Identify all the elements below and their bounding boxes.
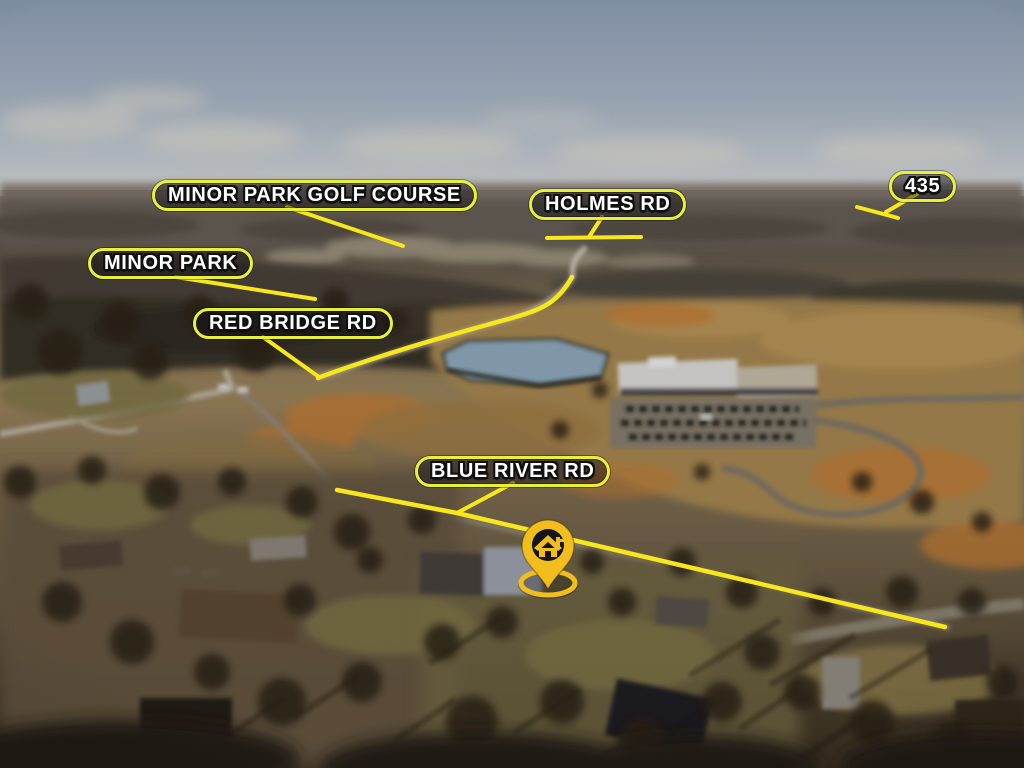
label-highway-435: 435 xyxy=(889,171,956,202)
label-text: MINOR PARK xyxy=(104,252,237,275)
annotation-layer xyxy=(0,0,1024,768)
label-text: MINOR PARK GOLF COURSE xyxy=(168,184,461,207)
label-red-bridge-rd: RED BRIDGE RD xyxy=(193,308,393,339)
road-trace-blue-river xyxy=(337,490,945,627)
label-text: HOLMES RD xyxy=(545,193,670,216)
blue-river-pointer-line xyxy=(457,483,513,513)
property-pin xyxy=(518,520,578,599)
label-text: BLUE RIVER RD xyxy=(431,460,594,483)
holmes-rd-underline xyxy=(547,237,641,238)
label-minor-park: MINOR PARK xyxy=(88,248,253,279)
minor-park-pointer-line xyxy=(176,277,315,299)
label-text: RED BRIDGE RD xyxy=(209,312,377,335)
golf-course-pointer-line xyxy=(287,207,403,246)
label-minor-park-golf-course: MINOR PARK GOLF COURSE xyxy=(152,180,477,211)
holmes-rd-pointer-line xyxy=(589,217,602,237)
label-text: 435 xyxy=(905,175,940,198)
aerial-photo-canvas: MINOR PARK GOLF COURSE HOLMES RD 435 MIN… xyxy=(0,0,1024,768)
label-holmes-rd: HOLMES RD xyxy=(529,189,686,220)
red-bridge-pointer-line xyxy=(263,337,319,377)
label-blue-river-rd: BLUE RIVER RD xyxy=(415,456,610,487)
